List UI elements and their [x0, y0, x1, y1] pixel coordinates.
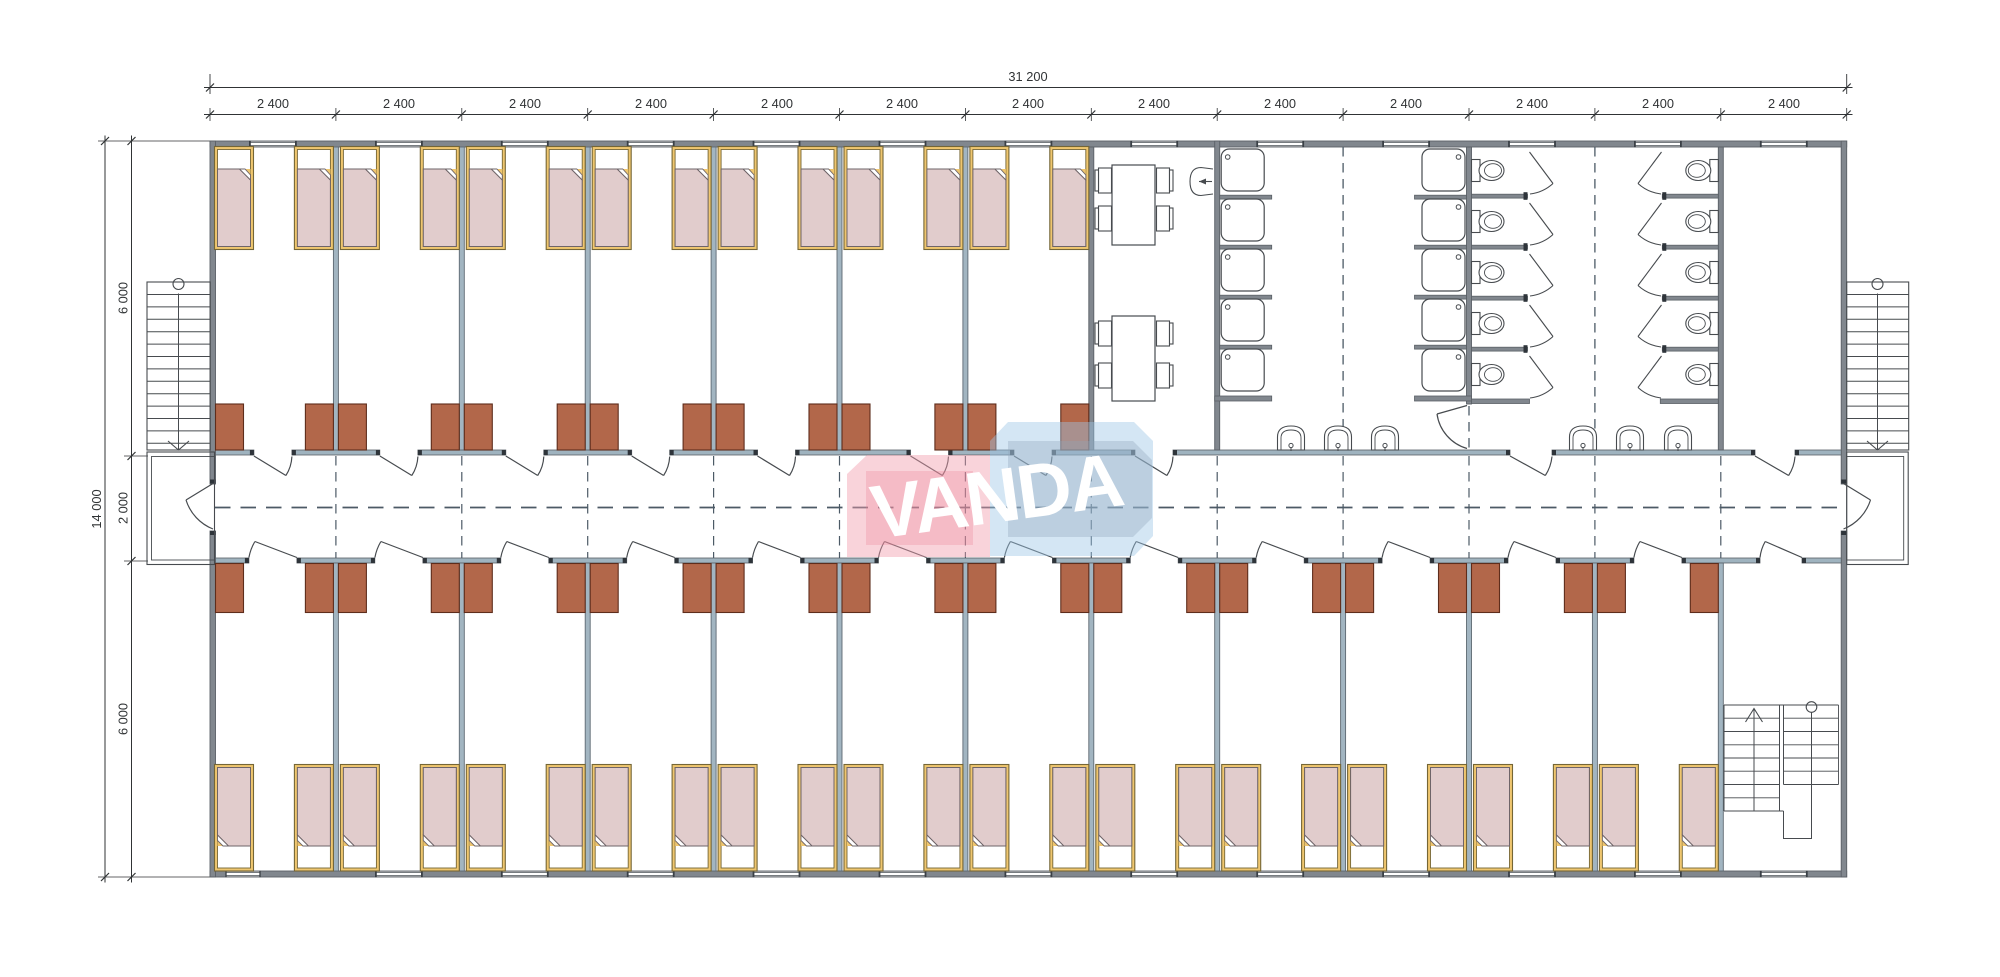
svg-text:2 400: 2 400 [1264, 96, 1296, 111]
svg-text:2 400: 2 400 [383, 96, 415, 111]
svg-text:14 000: 14 000 [89, 489, 104, 528]
svg-text:6 000: 6 000 [116, 282, 131, 314]
svg-text:2 400: 2 400 [1012, 96, 1044, 111]
svg-text:2 000: 2 000 [116, 492, 131, 524]
svg-text:2 400: 2 400 [509, 96, 541, 111]
svg-text:2 400: 2 400 [1642, 96, 1674, 111]
svg-text:2 400: 2 400 [1390, 96, 1422, 111]
svg-text:2 400: 2 400 [1516, 96, 1548, 111]
svg-text:2 400: 2 400 [1138, 96, 1170, 111]
svg-text:2 400: 2 400 [257, 96, 289, 111]
svg-text:2 400: 2 400 [635, 96, 667, 111]
svg-text:2 400: 2 400 [1768, 96, 1800, 111]
svg-text:2 400: 2 400 [761, 96, 793, 111]
svg-text:2 400: 2 400 [886, 96, 918, 111]
svg-text:6 000: 6 000 [116, 703, 131, 735]
svg-text:31 200: 31 200 [1008, 69, 1047, 84]
